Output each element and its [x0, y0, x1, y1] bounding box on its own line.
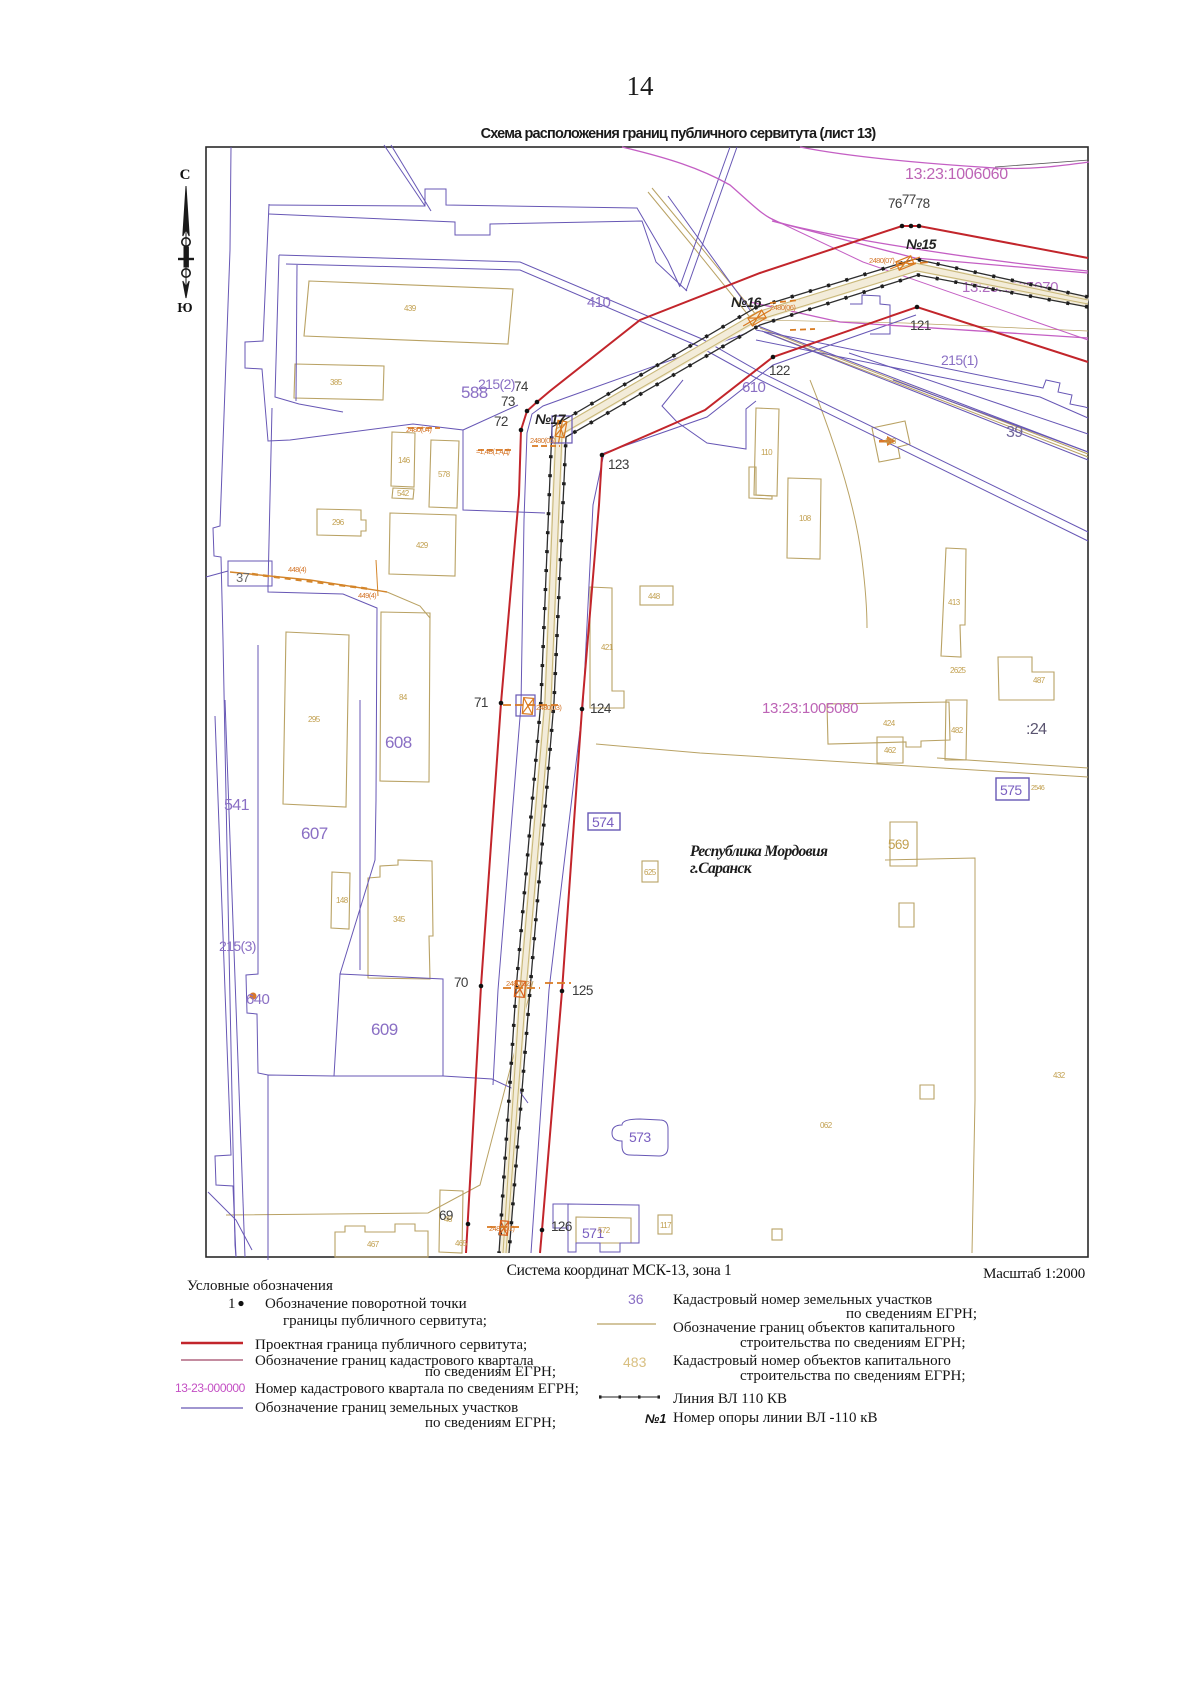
svg-text:Ю: Ю: [177, 300, 192, 315]
svg-text:122: 122: [769, 363, 790, 378]
svg-text::24: :24: [1026, 721, 1047, 738]
svg-text:74: 74: [514, 379, 529, 394]
svg-text:13-23-000000: 13-23-000000: [175, 1381, 246, 1395]
svg-text:432: 432: [1053, 1071, 1066, 1080]
svg-text:569: 569: [888, 837, 909, 852]
svg-text:Обозначение границ земельных у: Обозначение границ земельных участков: [255, 1400, 518, 1416]
svg-text:345: 345: [393, 915, 406, 924]
svg-text:124: 124: [590, 701, 612, 716]
svg-text:146: 146: [398, 456, 411, 465]
svg-text:542: 542: [397, 489, 410, 498]
svg-text:36: 36: [628, 1291, 644, 1307]
svg-text:215(1): 215(1): [941, 352, 978, 368]
svg-text:2480(02): 2480(02): [506, 979, 532, 988]
svg-text:110: 110: [761, 448, 773, 457]
svg-text:73: 73: [501, 394, 515, 409]
svg-text:Масштаб 1:2000: Масштаб 1:2000: [983, 1266, 1085, 1282]
svg-text:439: 439: [404, 304, 417, 313]
svg-text:607: 607: [301, 824, 328, 843]
svg-text:483: 483: [884, 437, 897, 446]
svg-text:2480(05): 2480(05): [530, 436, 556, 445]
svg-text:37: 37: [236, 570, 250, 585]
svg-text:2480(04): 2480(04): [406, 425, 432, 434]
svg-text:625: 625: [644, 868, 657, 877]
svg-text:№16: №16: [731, 294, 762, 310]
svg-text:465: 465: [455, 1239, 468, 1248]
svg-text:126: 126: [551, 1219, 572, 1234]
svg-text:Линия ВЛ 110 КВ: Линия ВЛ 110 КВ: [673, 1391, 787, 1407]
svg-text:578: 578: [438, 470, 451, 479]
svg-text:125: 125: [572, 983, 593, 998]
svg-text:№15: №15: [906, 236, 937, 252]
svg-text:Обозначение поворотной точки: Обозначение поворотной точки: [265, 1296, 467, 1312]
svg-text:2480(06): 2480(06): [770, 303, 796, 312]
svg-text:295: 295: [308, 715, 321, 724]
svg-text:Республика Мордовия: Республика Мордовия: [690, 843, 828, 860]
svg-text:462: 462: [884, 746, 897, 755]
svg-text:448: 448: [648, 592, 661, 601]
svg-text:575: 575: [1000, 782, 1022, 798]
svg-text:14: 14: [627, 71, 655, 101]
svg-text:483: 483: [623, 1354, 647, 1370]
svg-text:13:23:1006060: 13:23:1006060: [905, 166, 1008, 183]
svg-text:Кадастровый номер объектов кап: Кадастровый номер объектов капитального: [673, 1353, 951, 1369]
svg-text:487: 487: [1033, 676, 1046, 685]
svg-text:429: 429: [416, 541, 429, 550]
svg-text:Схема расположения границ публ: Схема расположения границ публичного сер…: [481, 126, 877, 142]
svg-text:2625: 2625: [950, 666, 967, 675]
svg-text:767778: 767778: [888, 192, 930, 211]
svg-text:482: 482: [951, 726, 964, 735]
svg-text:588: 588: [461, 383, 488, 402]
svg-text:13:23:1005080: 13:23:1005080: [762, 700, 858, 717]
svg-text:572: 572: [598, 1226, 611, 1235]
svg-text:границы публичного сервитута;: границы публичного сервитута;: [283, 1313, 487, 1329]
svg-text:71: 71: [474, 695, 488, 710]
svg-text:Номер кадастрового квартала по: Номер кадастрового квартала по сведениям…: [255, 1381, 579, 1397]
svg-text:Обозначение границ объектов ка: Обозначение границ объектов капитального: [673, 1320, 955, 1336]
svg-text:№1: №1: [645, 1412, 666, 1426]
svg-text:2480(01): 2480(01): [489, 1224, 515, 1233]
svg-text:по сведениям ЕГРН;: по сведениям ЕГРН;: [425, 1364, 556, 1380]
svg-text:48: 48: [444, 1215, 453, 1224]
svg-text:541: 541: [224, 797, 250, 814]
svg-text:Система координат МСК-13, зона: Система координат МСК-13, зона 1: [507, 1262, 732, 1279]
svg-text:2480(07): 2480(07): [869, 256, 895, 265]
svg-text:608: 608: [385, 733, 412, 752]
svg-text:Условные обозначения: Условные обозначения: [187, 1278, 333, 1294]
svg-text:2480(03): 2480(03): [536, 703, 562, 712]
svg-text:424: 424: [883, 719, 896, 728]
svg-text:121: 121: [910, 318, 931, 333]
svg-text:640: 640: [246, 991, 269, 1008]
svg-text:609: 609: [371, 1020, 398, 1039]
svg-text:С: С: [180, 167, 191, 183]
svg-text:449(4): 449(4): [358, 591, 377, 600]
svg-text:84: 84: [399, 693, 408, 702]
svg-text:строительства по сведениям ЕГР: строительства по сведениям ЕГРН;: [740, 1368, 966, 1384]
svg-text:Номер опоры линии ВЛ -110 кВ: Номер опоры линии ВЛ -110 кВ: [673, 1410, 878, 1426]
svg-text:по сведениям ЕГРН;: по сведениям ЕГРН;: [425, 1415, 556, 1431]
svg-text:467: 467: [367, 1240, 380, 1249]
svg-text:148: 148: [336, 896, 349, 905]
svg-text:574: 574: [592, 814, 614, 830]
svg-text:№17: №17: [535, 411, 567, 427]
svg-text:39: 39: [1006, 424, 1023, 441]
svg-text:413: 413: [948, 598, 961, 607]
svg-text:117: 117: [660, 1221, 672, 1230]
svg-text:410: 410: [587, 294, 610, 311]
svg-text:573: 573: [629, 1129, 651, 1145]
svg-text:70: 70: [454, 975, 468, 990]
svg-text:062: 062: [820, 1121, 833, 1130]
svg-text:448(4): 448(4): [288, 565, 307, 574]
svg-text:123: 123: [608, 457, 629, 472]
svg-text:1: 1: [228, 1296, 236, 1312]
svg-text:Проектная граница публичного с: Проектная граница публичного сервитута;: [255, 1337, 527, 1353]
svg-text:строительства по сведениям ЕГР: строительства по сведениям ЕГРН;: [740, 1335, 966, 1351]
svg-text:421: 421: [601, 643, 614, 652]
svg-text:215(3): 215(3): [219, 938, 256, 954]
svg-text:610: 610: [742, 379, 765, 396]
svg-text:≈1,4В(1,4Д): ≈1,4В(1,4Д): [476, 447, 511, 456]
svg-text:108: 108: [799, 514, 812, 523]
svg-text:296: 296: [332, 518, 345, 527]
svg-text:2546: 2546: [1031, 785, 1045, 792]
svg-text:г.Саранск: г.Саранск: [690, 860, 753, 877]
svg-text:72: 72: [494, 414, 508, 429]
svg-text:385: 385: [330, 378, 343, 387]
